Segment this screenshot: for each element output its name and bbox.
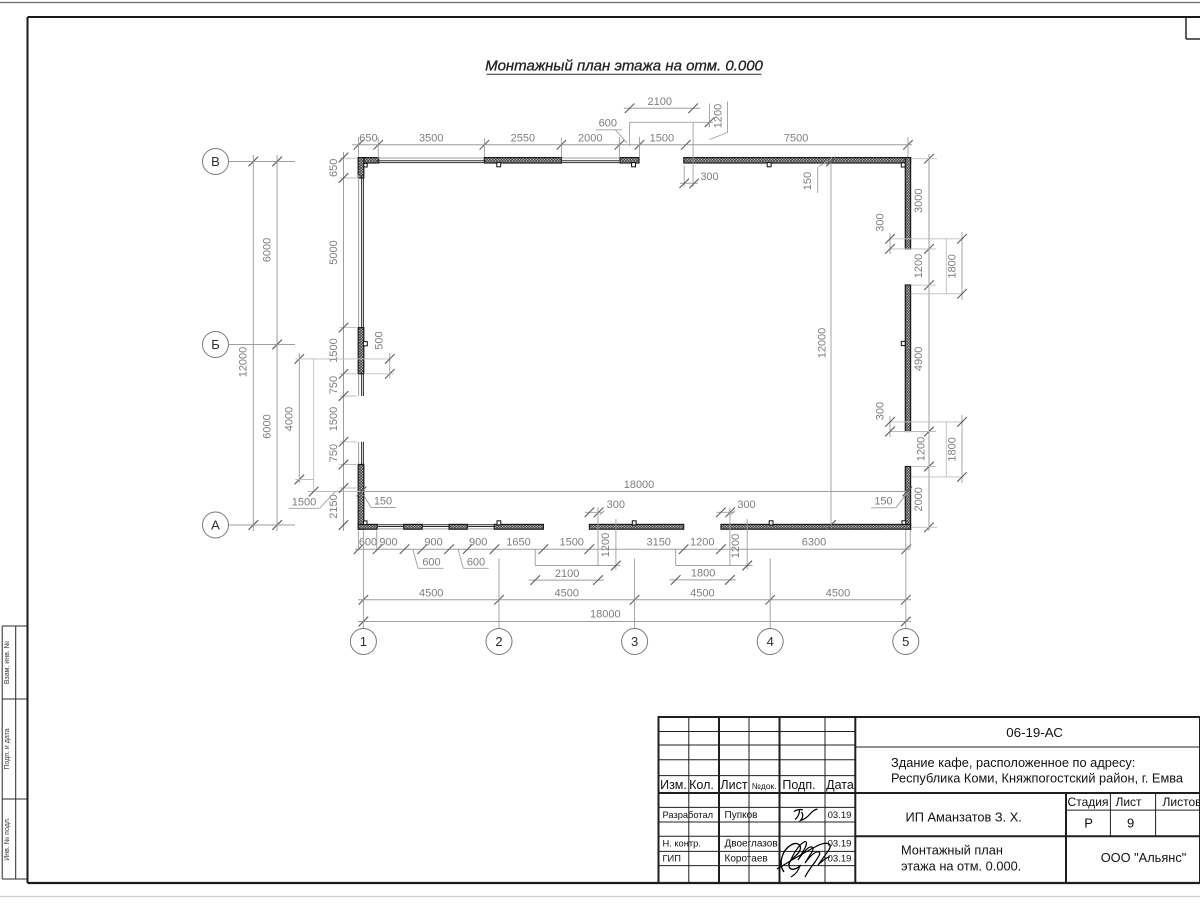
svg-text:4500: 4500 — [826, 587, 850, 599]
svg-text:4500: 4500 — [419, 587, 443, 599]
svg-text:4500: 4500 — [690, 587, 714, 599]
svg-text:18000: 18000 — [590, 609, 621, 621]
svg-text:1800: 1800 — [947, 437, 959, 461]
svg-text:Монтажный план этажа на отм. 0: Монтажный план этажа на отм. 0.000 — [485, 58, 763, 75]
svg-text:Изм.: Изм. — [660, 778, 687, 792]
svg-text:600: 600 — [599, 118, 617, 130]
svg-text:1200: 1200 — [916, 437, 928, 461]
svg-text:Стадия: Стадия — [1068, 795, 1109, 809]
svg-text:Лист: Лист — [1115, 795, 1142, 809]
svg-text:900: 900 — [379, 537, 397, 549]
svg-text:Разработал: Разработал — [663, 810, 714, 820]
svg-text:6000: 6000 — [262, 414, 274, 438]
svg-text:9: 9 — [1127, 816, 1134, 831]
svg-text:Подп. и дата: Подп. и дата — [4, 728, 11, 769]
svg-text:1500: 1500 — [292, 496, 316, 508]
svg-text:Коротаев: Коротаев — [725, 854, 768, 865]
svg-text:300: 300 — [874, 213, 886, 231]
svg-text:900: 900 — [424, 537, 442, 549]
svg-text:03.19: 03.19 — [828, 838, 852, 849]
svg-text:3000: 3000 — [913, 188, 925, 212]
svg-text:Двоеглазов: Двоеглазов — [725, 838, 778, 849]
svg-text:этажа на отм. 0.000.: этажа на отм. 0.000. — [901, 859, 1021, 874]
svg-text:Взам. инв. №: Взам. инв. № — [4, 641, 11, 684]
svg-text:Б: Б — [211, 337, 220, 352]
svg-text:Здание кафе, расположенное по: Здание кафе, расположенное по адресу: — [891, 755, 1135, 770]
svg-text:1500: 1500 — [559, 537, 583, 549]
svg-text:750: 750 — [328, 444, 340, 462]
svg-text:Кол.: Кол. — [689, 778, 714, 792]
svg-text:Р: Р — [1084, 816, 1093, 831]
svg-text:6300: 6300 — [802, 537, 826, 549]
svg-text:650: 650 — [359, 133, 377, 145]
svg-text:2100: 2100 — [555, 568, 579, 580]
svg-text:1500: 1500 — [328, 407, 340, 431]
svg-text:600: 600 — [359, 537, 377, 549]
svg-text:150: 150 — [874, 496, 892, 508]
svg-text:Н. контр.: Н. контр. — [663, 838, 701, 848]
svg-text:Инв. № подл.: Инв. № подл. — [4, 817, 11, 861]
svg-text:2: 2 — [495, 634, 502, 649]
svg-text:5: 5 — [902, 634, 909, 649]
svg-text:1800: 1800 — [947, 254, 959, 278]
svg-text:06-19-АС: 06-19-АС — [1006, 725, 1063, 740]
svg-text:1800: 1800 — [691, 568, 715, 580]
svg-text:1200: 1200 — [913, 254, 925, 278]
svg-text:2550: 2550 — [511, 133, 535, 145]
svg-text:4000: 4000 — [283, 407, 295, 431]
svg-text:1500: 1500 — [650, 133, 674, 145]
svg-text:600: 600 — [422, 556, 440, 568]
svg-text:12000: 12000 — [237, 347, 249, 378]
svg-text:4500: 4500 — [555, 587, 579, 599]
svg-text:3: 3 — [631, 634, 638, 649]
svg-text:03.19: 03.19 — [828, 854, 852, 865]
svg-text:300: 300 — [607, 499, 625, 511]
svg-text:3500: 3500 — [419, 133, 443, 145]
svg-text:Монтажный план: Монтажный план — [901, 842, 1003, 857]
svg-text:03.19: 03.19 — [828, 810, 852, 821]
svg-text:В: В — [211, 154, 220, 169]
svg-text:150: 150 — [802, 172, 814, 190]
svg-text:12000: 12000 — [817, 328, 829, 359]
svg-text:1650: 1650 — [506, 537, 530, 549]
svg-text:6000: 6000 — [262, 238, 274, 262]
svg-text:4: 4 — [767, 634, 774, 649]
svg-text:7500: 7500 — [784, 133, 808, 145]
svg-text:300: 300 — [700, 171, 718, 183]
svg-text:А: А — [211, 518, 220, 533]
svg-text:1200: 1200 — [690, 537, 714, 549]
svg-text:Дата: Дата — [826, 778, 854, 792]
svg-text:650: 650 — [328, 159, 340, 177]
svg-text:ООО "Альянс": ООО "Альянс" — [1101, 850, 1187, 865]
svg-text:750: 750 — [328, 376, 340, 394]
svg-text:Листов: Листов — [1163, 795, 1200, 809]
svg-text:1: 1 — [360, 634, 367, 649]
svg-text:№док.: №док. — [752, 781, 777, 791]
svg-text:2000: 2000 — [578, 133, 602, 145]
svg-text:500: 500 — [373, 331, 385, 349]
svg-text:1200: 1200 — [730, 534, 742, 558]
svg-text:Пупков: Пупков — [725, 810, 758, 821]
svg-text:ИП Аманзатов З. Х.: ИП Аманзатов З. Х. — [906, 810, 1022, 825]
svg-text:Подп.: Подп. — [782, 778, 815, 792]
svg-text:ГИП: ГИП — [663, 854, 681, 864]
svg-text:4900: 4900 — [913, 347, 925, 371]
svg-text:300: 300 — [737, 499, 755, 511]
svg-text:300: 300 — [874, 402, 886, 420]
svg-text:150: 150 — [374, 496, 392, 508]
svg-text:5000: 5000 — [328, 240, 340, 264]
svg-text:Республика Коми, Княжпогостски: Республика Коми, Княжпогостский район, г… — [891, 770, 1184, 785]
svg-text:Лист: Лист — [720, 778, 747, 792]
svg-text:2100: 2100 — [648, 96, 672, 108]
svg-text:18000: 18000 — [624, 479, 655, 491]
svg-text:600: 600 — [467, 556, 485, 568]
svg-text:900: 900 — [469, 537, 487, 549]
svg-text:3150: 3150 — [646, 537, 670, 549]
svg-text:1200: 1200 — [600, 533, 612, 557]
svg-text:1200: 1200 — [713, 104, 725, 128]
svg-text:2000: 2000 — [913, 487, 925, 511]
